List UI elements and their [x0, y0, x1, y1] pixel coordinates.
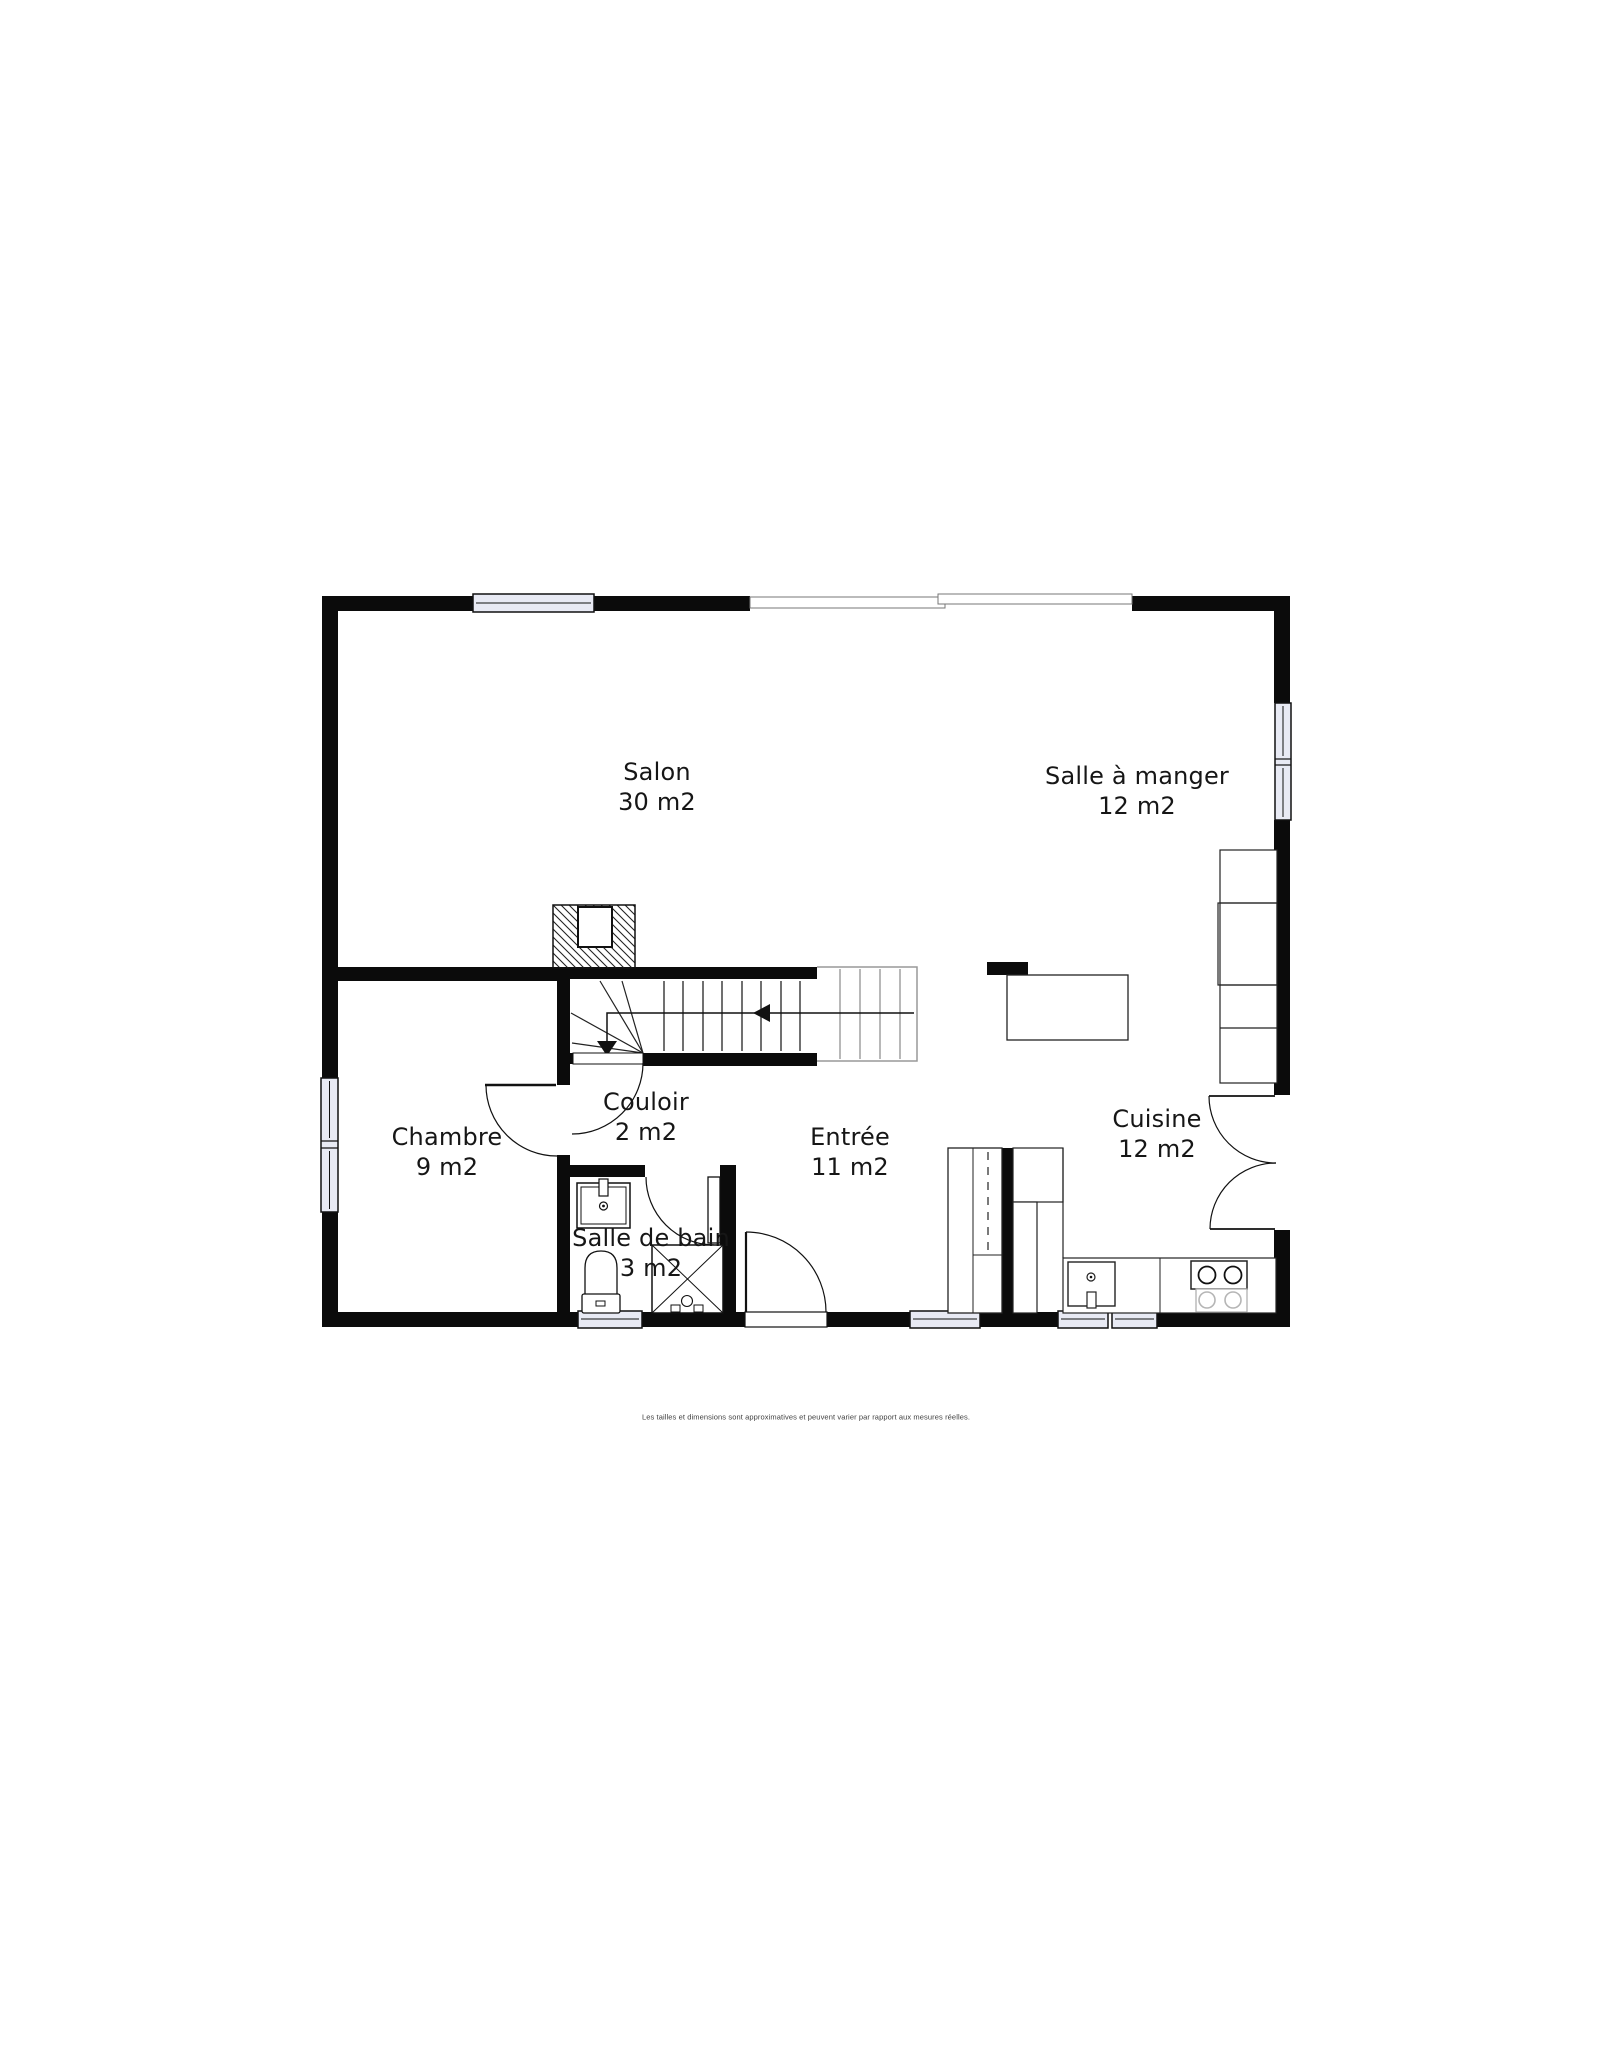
room-label-couloir: Couloir 2 m2: [603, 1087, 689, 1147]
kitchen-double-door: [1209, 1096, 1276, 1229]
dining-table: [1007, 975, 1128, 1040]
entry-door: [745, 1232, 827, 1327]
opening-top-wall: [750, 594, 1132, 608]
room-area: 3 m2: [572, 1253, 730, 1283]
disclaimer-text: Les tailles et dimensions sont approxima…: [642, 1413, 970, 1422]
kitchen-wall-cabinets: [1218, 850, 1277, 1083]
staircase: [571, 967, 917, 1064]
room-label-chambre: Chambre 9 m2: [392, 1122, 503, 1182]
room-area: 12 m2: [1112, 1134, 1201, 1164]
kitchen-counter-left: [1013, 1148, 1063, 1313]
bathroom-sink: [577, 1179, 630, 1228]
room-label-salle-a-manger: Salle à manger 12 m2: [1045, 761, 1229, 821]
entry-closet: [948, 1148, 1002, 1313]
window-right-salle-a-manger: [1275, 703, 1291, 820]
kitchen-sink: [1068, 1262, 1115, 1308]
room-name: Chambre: [392, 1122, 503, 1152]
room-label-cuisine: Cuisine 12 m2: [1112, 1104, 1201, 1164]
stairs-direction-arrow: [597, 1004, 914, 1056]
room-name: Salle à manger: [1045, 761, 1229, 791]
chimney: [553, 905, 635, 968]
room-label-salon: Salon 30 m2: [618, 757, 696, 817]
room-area: 11 m2: [810, 1152, 890, 1182]
kitchen-fixtures: [1013, 850, 1277, 1313]
room-name: Salon: [618, 757, 696, 787]
room-area: 12 m2: [1045, 791, 1229, 821]
room-name: Cuisine: [1112, 1104, 1201, 1134]
room-area: 30 m2: [618, 787, 696, 817]
room-name: Couloir: [603, 1087, 689, 1117]
windows: [321, 594, 1291, 1328]
stairs-continuation: [840, 969, 900, 1059]
room-area: 9 m2: [392, 1152, 503, 1182]
floor-plan-drawing: [0, 0, 1624, 2047]
room-label-salle-de-bain: Salle de bain 3 m2: [572, 1223, 730, 1283]
room-label-entree: Entrée 11 m2: [810, 1122, 890, 1182]
window-left-chambre: [321, 1078, 338, 1212]
room-name: Entrée: [810, 1122, 890, 1152]
exterior-walls: [322, 596, 1290, 1327]
window-top-salon: [473, 594, 594, 612]
stove: [1191, 1261, 1247, 1312]
room-name: Salle de bain: [572, 1223, 730, 1253]
floor-plan-page: Salon 30 m2 Salle à manger 12 m2 Chambre…: [0, 0, 1624, 2047]
room-area: 2 m2: [603, 1117, 689, 1147]
